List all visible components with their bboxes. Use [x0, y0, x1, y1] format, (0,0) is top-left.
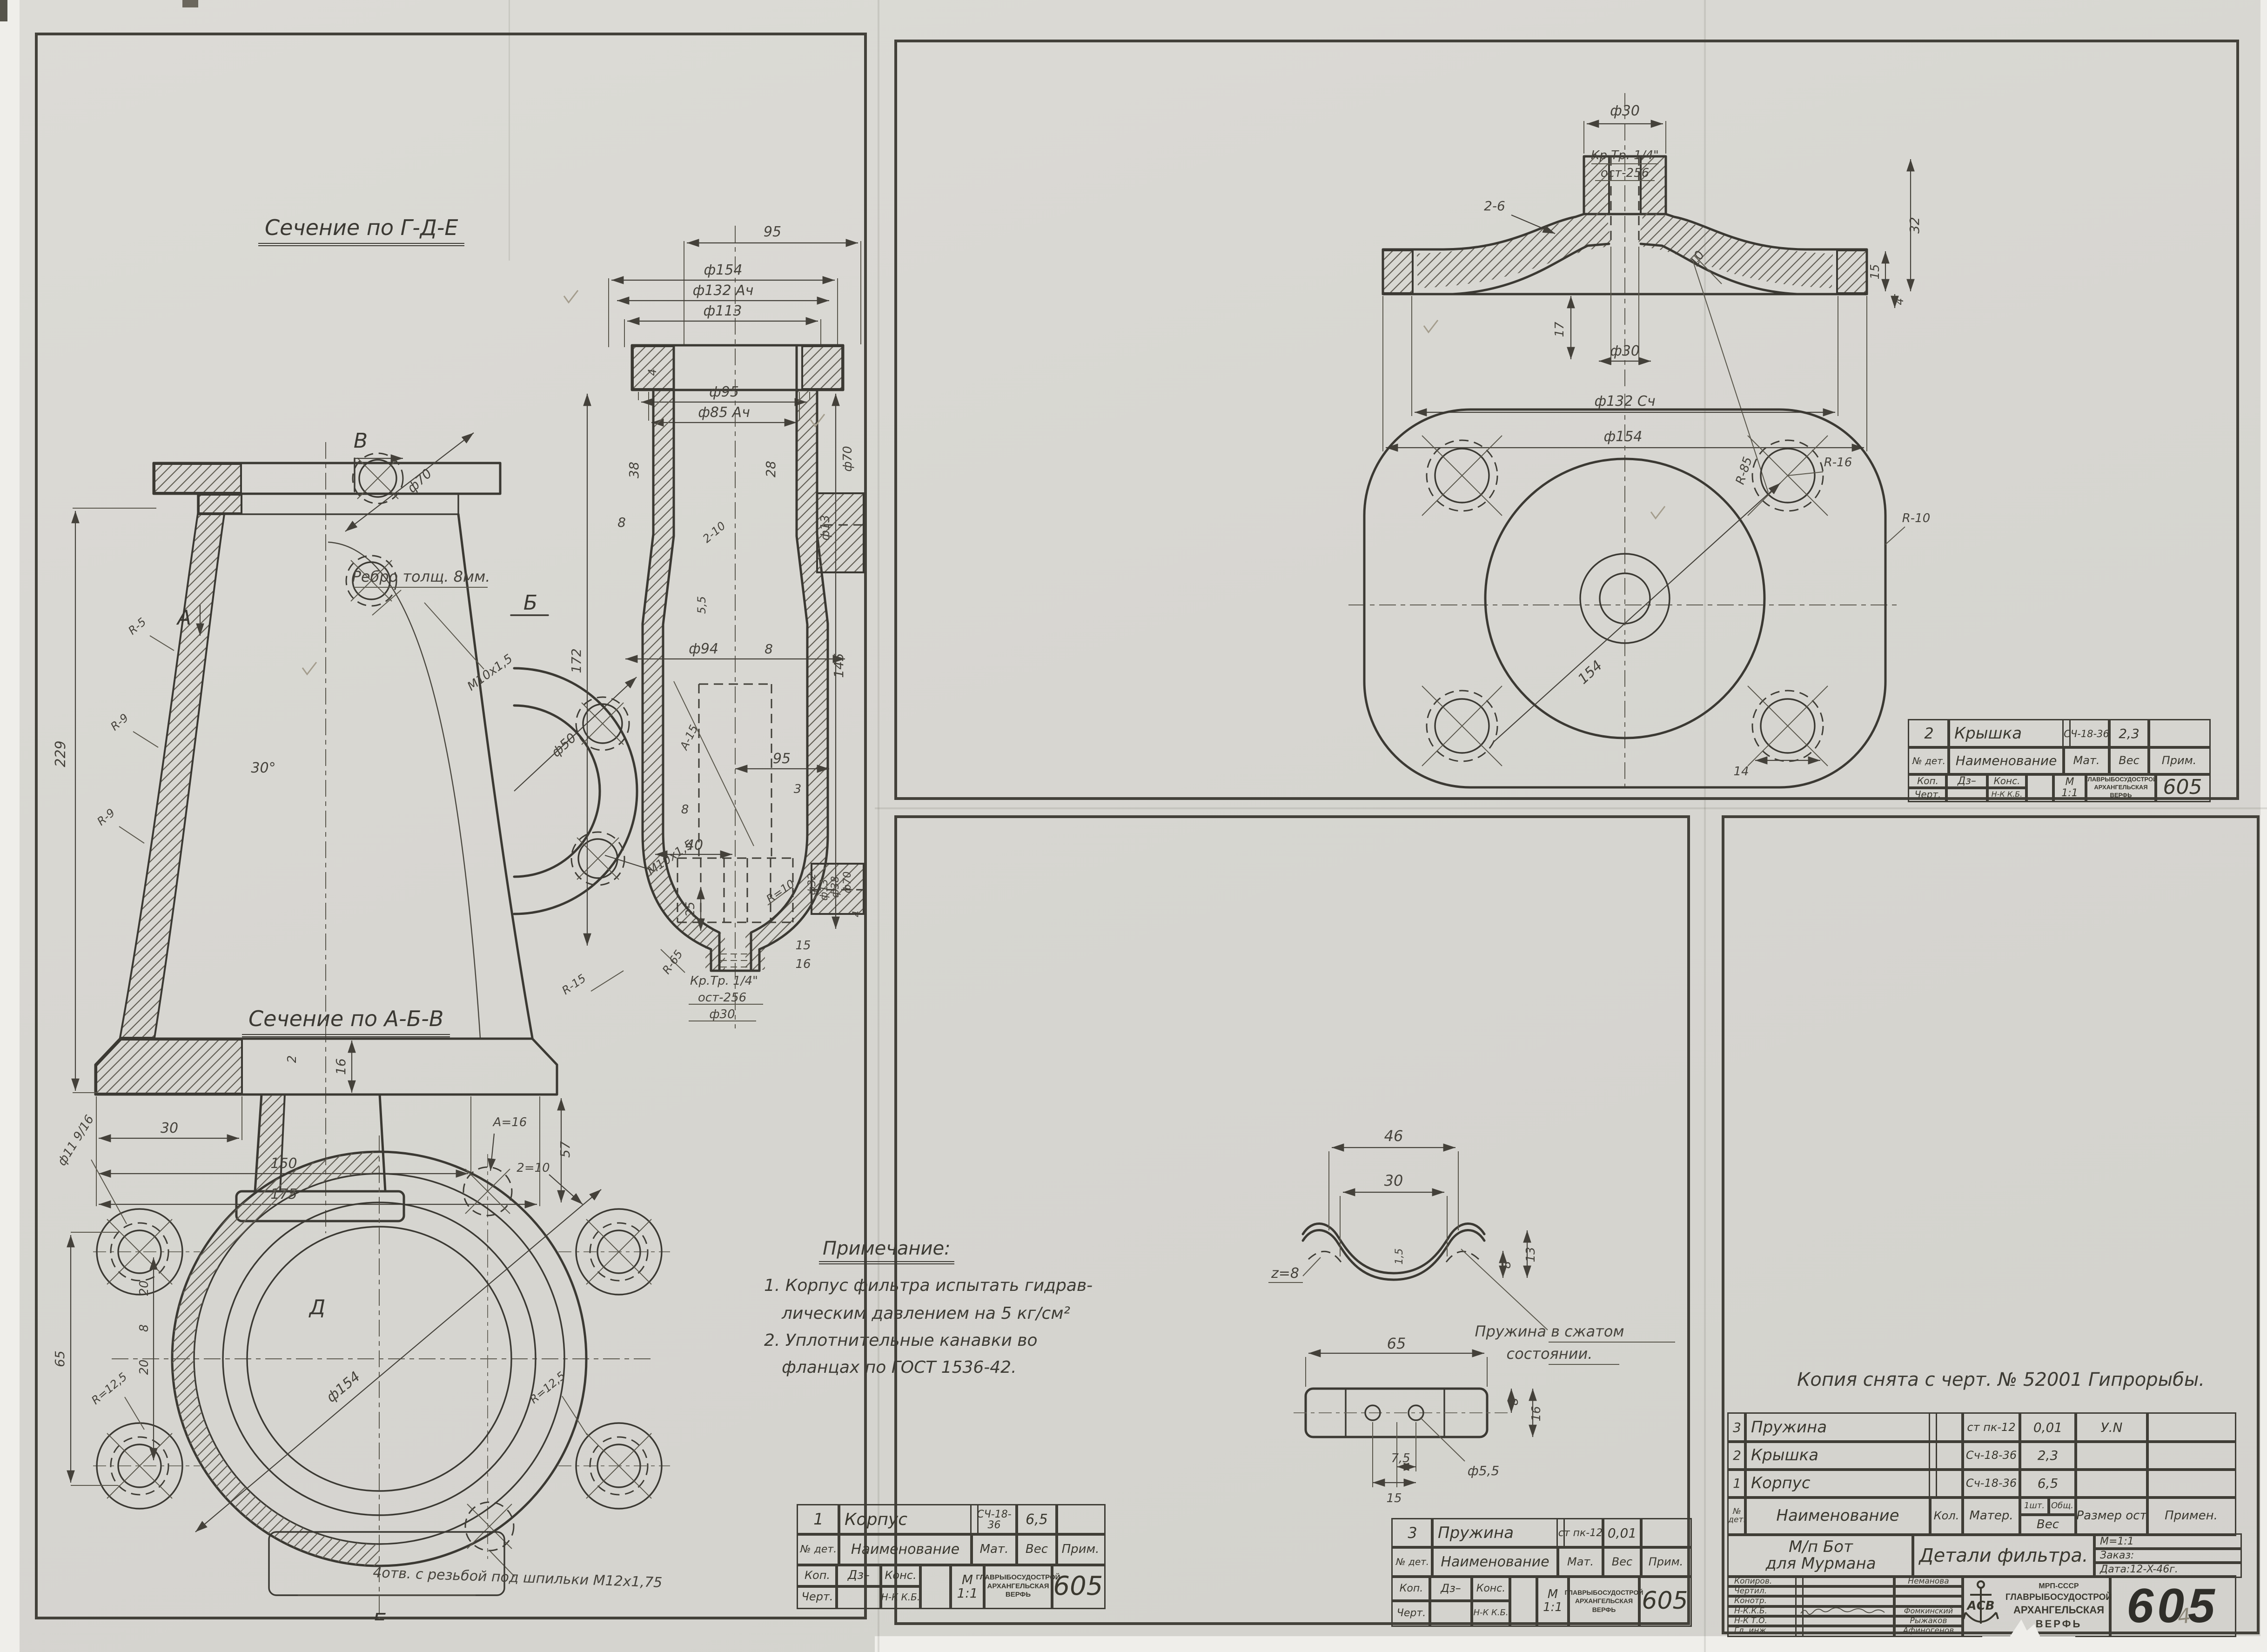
parts-row-note [2146, 1412, 2236, 1443]
dim-label: 8 [137, 1324, 151, 1332]
parts-row-mat: Сч-18-36 [1961, 1468, 2021, 1499]
dim-label: 16 [795, 957, 811, 971]
dim-label: 145 [831, 653, 846, 678]
thread-note: ост-256 [1601, 166, 1649, 180]
dim-label: R-15 [559, 972, 588, 997]
dim-label: 154 [1575, 658, 1606, 688]
sig-label: Гл. инж. [1727, 1625, 1804, 1637]
chief-label: Н-К К.Б. [1470, 1599, 1511, 1627]
anchor-monogram: АСВ [1966, 1599, 1994, 1613]
scale-cell: М1:1 [1536, 1575, 1570, 1627]
part-number: 1 [797, 1504, 840, 1536]
drawn-label: Черт. [1391, 1599, 1431, 1627]
body-sections-drawing: 229 В А Б 30° Ребро толщ. 8мм. R-5 R-9 R… [35, 33, 868, 1620]
section-marker: Д [309, 1296, 325, 1319]
part-weight: 6,5 [1015, 1504, 1058, 1536]
construct-label: Конс. [879, 1564, 922, 1588]
header-name: Наименование [1947, 746, 2065, 776]
dim-label: 15 [795, 939, 811, 953]
dim-label: R-16 [1824, 456, 1852, 470]
dim-label: 30° [251, 760, 275, 776]
header-name: Наименование [1431, 1546, 1559, 1578]
dim-label: ф5,5 [1468, 1463, 1499, 1478]
dim-label: ф70 [841, 446, 855, 471]
header-prim: Прим. [2147, 746, 2211, 776]
dim-label: 4 [646, 369, 659, 376]
copied-value: Дз– [1429, 1575, 1473, 1602]
thread-note: ф30 [709, 1007, 735, 1021]
dim-label: М10х1,5 [465, 651, 515, 693]
main-drawing-number: 605 [2109, 1575, 2236, 1637]
dim-label: 38 [626, 462, 642, 478]
section-marker: В [354, 429, 368, 453]
copied-label: Коп. [797, 1564, 838, 1588]
scan-margin-left [0, 0, 20, 1652]
copied-label: Коп. [1391, 1575, 1431, 1602]
parts-row-name: Корпус [1744, 1468, 1937, 1499]
copy-note: Копия снята с черт. № 52001 Гипрорыбы. [1797, 1369, 2205, 1390]
scan-corner-artifact [0, 0, 7, 21]
dim-label: ф11 9/16 [55, 1113, 97, 1168]
header-ves: Вес [1015, 1533, 1058, 1566]
dim-label: 172 [569, 648, 584, 673]
dim-label: 95 [773, 751, 791, 767]
dim-label: 3 [794, 782, 802, 796]
chief-label: Н-К К.Б. [1986, 786, 2028, 802]
scan-edge-artifact [182, 0, 198, 7]
dim-label: 8 [1507, 1398, 1521, 1406]
chief-label: Н-К К.Б. [879, 1585, 922, 1609]
dim-label: 28 [763, 461, 778, 477]
sig-name: Афиногенов [1893, 1625, 1964, 1637]
parts-row-name: Пружина [1744, 1412, 1937, 1443]
dim-label: ф30 [1610, 103, 1640, 119]
dim-label: 2-10 [700, 519, 728, 545]
dim-label: ф32 [806, 873, 818, 895]
dim-label: ф30 [1610, 343, 1640, 359]
dim-label: R-9 [94, 806, 117, 828]
dim-label: 95 [764, 224, 781, 240]
drawn-label: Черт. [797, 1585, 838, 1609]
dim-label: ф13 [818, 879, 830, 901]
thread-note: ост-256 [698, 991, 746, 1005]
dim-label: 46 [1384, 1127, 1403, 1145]
shipyard-name: ГЛАВРЫБОСУДОСТРОЙАРХАНГЕЛЬСКАЯВЕРФЬ [983, 1564, 1053, 1609]
parts-row-weight: 6,5 [2019, 1468, 2077, 1499]
part-material: СЧ-18-36 [2062, 719, 2111, 749]
parts-header-size: Размер ост [2074, 1496, 2149, 1536]
dim-label: ф70 [404, 466, 435, 496]
parts-row-qty [1929, 1440, 1964, 1471]
fold-crease-vertical-1 [878, 0, 879, 1652]
dim-label: ф13 [818, 515, 832, 540]
dim-label: А-15 [677, 723, 700, 752]
dim-label: z=8 [1271, 1265, 1299, 1282]
section-marker: Е [373, 1609, 386, 1620]
dim-label: 32 [1907, 217, 1922, 234]
parts-row-mat: ст пк-12 [1961, 1412, 2021, 1443]
drawn-label: Черт. [1908, 786, 1948, 802]
parts-row-name: Крышка [1744, 1440, 1937, 1471]
spring-flat-view: 65 8 16 7,5 15 ф5,5 [1294, 1335, 1543, 1505]
parts-header-mat: Матер. [1961, 1496, 2021, 1536]
rib-note: Ребро толщ. 8мм. [352, 568, 490, 585]
drawing-number: 605 [1638, 1575, 1692, 1627]
dim-label: 17 [1553, 322, 1567, 337]
header-mat: Мат. [2062, 746, 2111, 776]
body-side-section-view: 229 В А Б 30° Ребро толщ. 8мм. R-5 R-9 R… [53, 429, 696, 1233]
blank-cell [919, 1564, 952, 1609]
body-flange-plan-view: ф11 9/16 65 20 8 20 R=12,5 R=12,5 ф154 А… [52, 1113, 670, 1620]
header-num: № дет. [1391, 1546, 1434, 1578]
header-mat: Мат. [1556, 1546, 1604, 1578]
dim-label: 4 [1893, 298, 1906, 305]
header-ves: Вес [1602, 1546, 1643, 1578]
dim-label: ф154 [1604, 429, 1643, 445]
dim-label: ф95 [709, 384, 739, 400]
shipyard-name: ГЛАВРЫБОСУДОСТРОЙАРХАНГЕЛЬСКАЯВЕРФЬ [1567, 1575, 1641, 1627]
scale-cell: М1:1 [2052, 773, 2087, 802]
dim-label: ф85 Ач [698, 404, 750, 421]
parts-row-mat: Сч-18-36 [1961, 1440, 2021, 1471]
dim-label: 30 [1384, 1172, 1403, 1189]
dim-label: 40 [685, 837, 703, 853]
part-name: Корпус [838, 1504, 979, 1536]
sheet-title: Детали фильтра. [1912, 1533, 2096, 1578]
parts-row-size [2074, 1440, 2149, 1471]
dim-label: 20 [137, 1280, 151, 1296]
dim-label: 15 [1386, 1491, 1402, 1505]
dim-label: R-85 [1733, 455, 1755, 486]
object-name: М/п Ботдля Мурмана [1727, 1533, 1914, 1578]
cover-section-view: ф30 Кр.Тр. 1/4" ост-256 2-6 ф30 17 10 ф1… [1383, 93, 1922, 492]
dim-label: R-10 [1902, 511, 1931, 525]
dim-label: 8 [1500, 1261, 1514, 1269]
dim-label: 8 [617, 515, 626, 530]
parts-row-qty [1929, 1412, 1964, 1443]
header-prim: Прим. [1640, 1546, 1692, 1578]
dim-label: 16 [1529, 1406, 1543, 1421]
header-num: № дет. [797, 1533, 840, 1566]
dim-label: 16 [333, 1058, 349, 1075]
parts-row-size [2074, 1468, 2149, 1499]
dim-label: ф132 Ач [693, 282, 754, 299]
spring-profile-view: 46 30 1,5 13 8 z=8 Пружина в сжатом сост… [1268, 1127, 1675, 1364]
dim-label: 229 [53, 740, 69, 767]
dim-label: R-5 [126, 615, 148, 638]
dim-label: 7,5 [1391, 1451, 1410, 1465]
fold-crease-horizontal [875, 807, 2267, 809]
scan-margin-right [2260, 0, 2267, 1652]
dim-label: 20 [137, 1359, 151, 1375]
emblem-line: МРП-СССР [2005, 1581, 2112, 1592]
parts-header-note: Примен. [2146, 1496, 2236, 1536]
part-name: Пружина [1431, 1518, 1565, 1549]
part-note [1055, 1504, 1106, 1536]
drawing-number: 605 [2154, 773, 2211, 802]
stud-note: 4отв. с резьбой под шпильки М12х1,75 [373, 1565, 663, 1591]
section-marker: Б [523, 591, 537, 615]
part-material: ст пк-12 [1556, 1518, 1604, 1549]
dim-label: 2-6 [1484, 198, 1505, 214]
drawn-value [1429, 1599, 1473, 1627]
shipyard-name: ГЛАВРЫБОСУДОСТРОЙАРХАНГЕЛЬСКАЯВЕРФЬ [2085, 773, 2157, 802]
dim-label: 15 [1868, 264, 1882, 279]
torn-paper-edge [1982, 1615, 2075, 1643]
section-title-gde: Сечение по Г-Д-Е [258, 215, 464, 246]
dim-label: 8 [681, 803, 689, 817]
dim-label: 13 [1524, 1247, 1538, 1262]
blank-cell [1509, 1575, 1538, 1627]
blank-cell [2025, 773, 2055, 802]
dim-label: ф94 [689, 641, 718, 657]
header-name: Наименование [838, 1533, 973, 1566]
drawing-number: 605 [1051, 1564, 1106, 1609]
dim-label: 4 [851, 911, 863, 917]
parts-header-name: Наименование [1744, 1496, 1932, 1536]
dim-label: 65 [52, 1350, 67, 1367]
dim-label: ф154 [704, 262, 743, 278]
thread-note: Кр.Тр. 1/4" [1591, 148, 1659, 162]
dim-label: ф70 [842, 872, 853, 893]
parts-row-note [2146, 1440, 2236, 1471]
thread-note: Кр.Тр. 1/4" [690, 974, 758, 988]
dim-label: 30 [161, 1120, 178, 1136]
header-prim: Прим. [1055, 1533, 1106, 1566]
parts-header-qty: Кол. [1929, 1496, 1964, 1536]
part-weight: 0,01 [1602, 1518, 1643, 1549]
body-vessel-section: 95 ф154 ф132 Ач ф113 ф95 ф85 Ач 4 38 28 … [559, 224, 864, 1028]
dim-label: А=16 [492, 1115, 527, 1129]
compressed-state-note: состоянии. [1507, 1345, 1593, 1363]
parts-row-note [2146, 1468, 2236, 1499]
dim-label: R-9 [108, 711, 131, 733]
emblem-line: ГЛАВРЫБОСУДОСТРОЙ [2005, 1592, 2112, 1604]
scanned-blueprint-sheet: { "body": { "sec1_title": "Сечение по Г-… [0, 0, 2267, 1652]
copied-value: Дз– [835, 1564, 882, 1588]
dim-label: R=12,5 [89, 1370, 129, 1407]
scale-cell: М1:1 [949, 1564, 986, 1609]
dim-label: ф154 [323, 1369, 363, 1406]
part-weight: 2,3 [2108, 719, 2150, 749]
dim-label: 1,5 [1394, 1249, 1405, 1265]
pencil-mark: 4 [2176, 1604, 2192, 1629]
dim-label: 57 [557, 1141, 573, 1158]
part-name: Крышка [1947, 719, 2071, 749]
dim-label: 25 [684, 901, 698, 917]
parts-row-weight: 2,3 [2019, 1440, 2077, 1471]
section-marker: А [176, 606, 191, 630]
section-title-abv: Сечение по А-Б-В [242, 1006, 450, 1037]
parts-row-qty [1929, 1468, 1964, 1499]
part-note [1640, 1518, 1692, 1549]
part-number: 2 [1908, 719, 1950, 749]
dim-label: 14 [1733, 765, 1749, 779]
part-number: 3 [1391, 1518, 1434, 1549]
part-note [2147, 719, 2211, 749]
header-num: № дет. [1908, 746, 1950, 776]
parts-row-size: У.N [2074, 1412, 2149, 1443]
dim-label: ф113 [704, 303, 742, 319]
drawn-value [835, 1585, 882, 1609]
sig-field [1795, 1625, 1896, 1637]
construct-label: Конс. [1470, 1575, 1511, 1602]
parts-header-ves: Вес [2019, 1513, 2077, 1536]
dim-label: 65 [1387, 1335, 1406, 1352]
cover-plan-view: 154 R-16 R-10 14 [1348, 394, 1930, 791]
dim-label: 2 [285, 1055, 299, 1063]
header-ves: Вес [2108, 746, 2150, 776]
drawn-value [1945, 786, 1989, 802]
dim-label: ф38 [830, 876, 841, 898]
cover-drawing: ф30 Кр.Тр. 1/4" ост-256 2-6 ф30 17 10 ф1… [894, 40, 2240, 801]
parts-row-weight: 0,01 [2019, 1412, 2077, 1443]
header-mat: Мат. [970, 1533, 1018, 1566]
dim-label: 8 [765, 641, 773, 657]
dim-label: 5,5 [695, 596, 708, 614]
part-material: СЧ-18-36 [970, 1504, 1018, 1536]
dim-label: 2=10 [516, 1161, 550, 1175]
compressed-state-note: Пружина в сжатом [1475, 1323, 1624, 1340]
